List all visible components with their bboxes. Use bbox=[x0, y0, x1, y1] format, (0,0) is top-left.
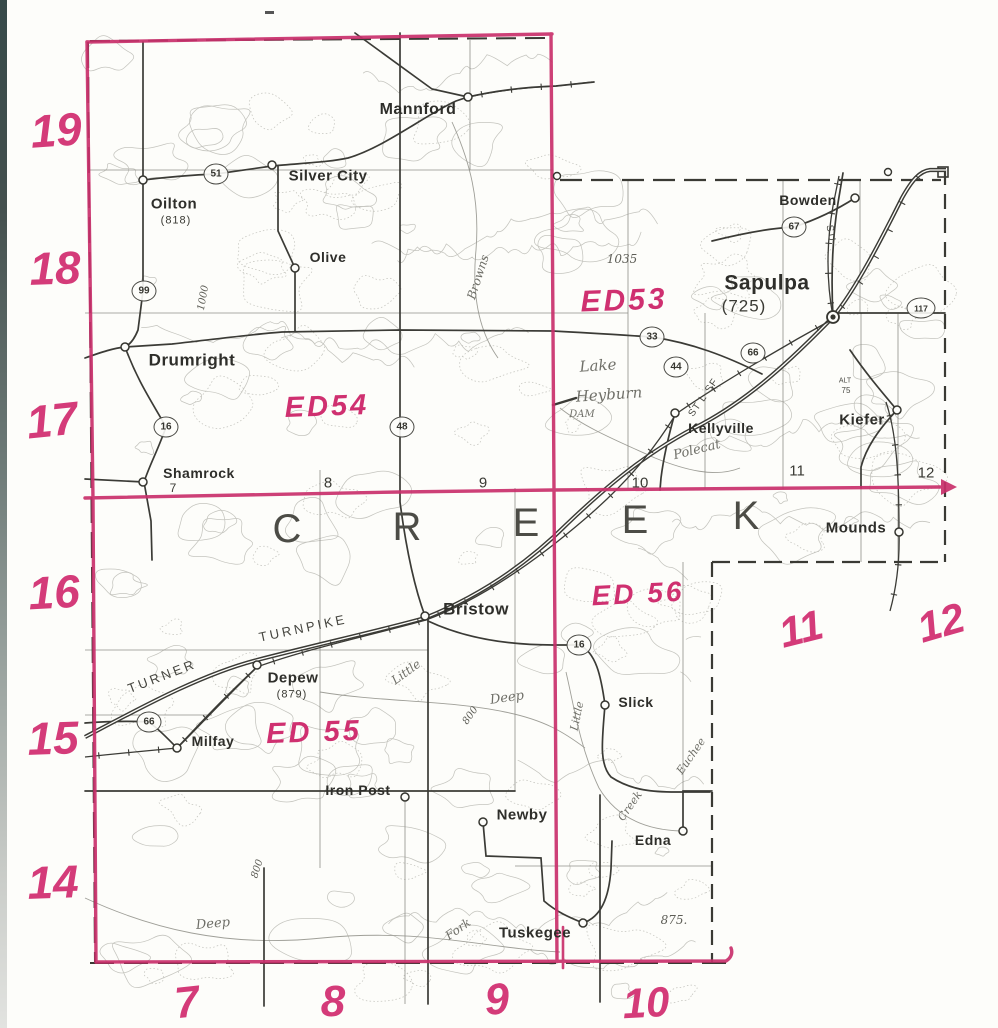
highway-shield: 67 bbox=[782, 217, 807, 238]
section-number: 11 bbox=[789, 464, 805, 479]
highway-shield: 51 bbox=[204, 164, 229, 185]
water-feature-label: Deep bbox=[489, 689, 525, 707]
town-label: Sapulpa bbox=[724, 273, 809, 294]
town-label: Mounds bbox=[826, 521, 887, 536]
railroad-label: 75 bbox=[842, 387, 851, 395]
water-feature-label: Deep bbox=[195, 916, 230, 932]
section-number: 10 bbox=[632, 476, 649, 491]
red-col-number: 9 bbox=[483, 977, 510, 1023]
red-row-number: 14 bbox=[27, 858, 80, 906]
elevation-label: 875. bbox=[661, 914, 688, 926]
highway-shield: 99 bbox=[132, 281, 157, 302]
highway-shield: 117 bbox=[907, 298, 936, 319]
elevation-label: 800 bbox=[250, 858, 265, 879]
town-label: Oilton bbox=[151, 197, 197, 212]
turnpike-label: TURNER bbox=[126, 657, 198, 695]
town-label: Kiefer bbox=[839, 413, 885, 428]
red-side-number: 12 bbox=[913, 596, 969, 649]
water-feature-label: Browns bbox=[465, 253, 491, 300]
turnpike-label: TURNPIKE bbox=[258, 612, 348, 643]
town-elevation: (725) bbox=[722, 298, 767, 315]
red-row-number: 19 bbox=[29, 105, 83, 154]
water-feature-label: Fork bbox=[443, 916, 473, 942]
county-name-letter: E bbox=[513, 503, 540, 543]
water-feature-label: Heyburn bbox=[575, 385, 642, 405]
highway-shield: 66 bbox=[137, 712, 162, 733]
water-feature-label: Creek bbox=[616, 789, 644, 823]
railroad-label: ST L-SF bbox=[687, 377, 720, 419]
water-feature-label: Euchee bbox=[675, 736, 708, 776]
red-col-number: 7 bbox=[173, 980, 202, 1026]
highway-shield: 44 bbox=[664, 357, 689, 378]
red-col-number: 8 bbox=[321, 980, 345, 1024]
highway-shield: 16 bbox=[567, 635, 592, 656]
county-name-letter: R bbox=[393, 507, 422, 547]
town-label: Drumright bbox=[149, 352, 236, 369]
elevation-label: 1000 bbox=[197, 285, 211, 312]
water-feature-label: Lake bbox=[579, 357, 617, 375]
red-row-number: 16 bbox=[27, 568, 81, 617]
town-label: Kellyville bbox=[688, 421, 754, 435]
town-label: Newby bbox=[497, 808, 548, 823]
water-feature-label: Little bbox=[569, 700, 586, 731]
railroad-label: SU bbox=[824, 224, 837, 243]
red-col-number: 10 bbox=[622, 981, 671, 1025]
town-label: Silver City bbox=[289, 169, 368, 184]
ed-label: ED 56 bbox=[591, 578, 685, 611]
town-elevation: (879) bbox=[277, 690, 308, 701]
ed-label: ED 55 bbox=[266, 717, 363, 749]
town-label: Mannford bbox=[380, 102, 457, 118]
section-number: 7 bbox=[170, 482, 177, 494]
section-number: 9 bbox=[479, 476, 487, 491]
town-label: Slick bbox=[618, 695, 653, 709]
red-row-number: 17 bbox=[24, 394, 80, 445]
ed-label: ED53 bbox=[580, 284, 668, 317]
red-row-number: 15 bbox=[27, 714, 80, 762]
section-number: 8 bbox=[324, 476, 332, 491]
town-label: Depew bbox=[268, 671, 319, 686]
town-label: Shamrock bbox=[163, 466, 235, 480]
town-label: Iron Post bbox=[325, 783, 390, 797]
scanned-county-map: 191817161514789101112ED53ED54ED 55ED 56C… bbox=[0, 0, 998, 1028]
highway-shield: 16 bbox=[154, 417, 179, 438]
highway-shield: 48 bbox=[390, 417, 415, 438]
highway-shield: 33 bbox=[640, 327, 665, 348]
section-number: 12 bbox=[918, 466, 935, 481]
railroad-label: ALT bbox=[839, 378, 851, 385]
elevation-label: 800 bbox=[461, 705, 480, 726]
highway-shield: 66 bbox=[741, 343, 766, 364]
ed-label: ED54 bbox=[284, 391, 370, 423]
town-label: Bristow bbox=[443, 601, 509, 618]
water-feature-label: Little bbox=[389, 658, 422, 687]
county-name-letter: E bbox=[622, 500, 649, 540]
town-label: Tuskegee bbox=[499, 926, 571, 941]
town-label: Edna bbox=[635, 833, 671, 847]
county-name-letter: C bbox=[273, 509, 302, 549]
town-label: Milfay bbox=[192, 734, 235, 748]
elevation-label: 1035 bbox=[607, 253, 638, 265]
county-name-letter: K bbox=[733, 496, 760, 536]
town-label: Olive bbox=[310, 250, 347, 264]
red-side-number: 11 bbox=[775, 603, 827, 654]
red-row-number: 18 bbox=[29, 244, 82, 292]
town-elevation: (818) bbox=[161, 216, 192, 227]
water-feature-label: Polecat bbox=[672, 438, 722, 462]
map-labels: 191817161514789101112ED53ED54ED 55ED 56C… bbox=[0, 0, 998, 1028]
town-label: Bowden bbox=[779, 193, 836, 207]
water-feature-label: DAM bbox=[569, 410, 594, 420]
